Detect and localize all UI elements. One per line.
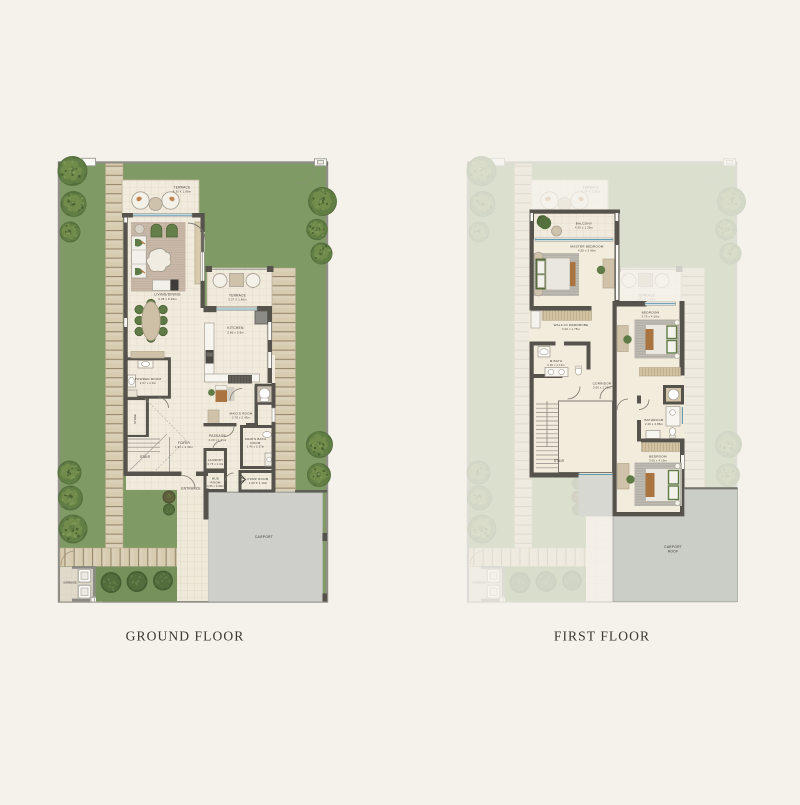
- svg-text:PASSAGE: PASSAGE: [209, 434, 226, 438]
- svg-text:PUMP ROOM: PUMP ROOM: [247, 477, 268, 481]
- svg-text:2.26 x 2.86m: 2.26 x 2.86m: [645, 422, 663, 426]
- svg-text:BATHROOM: BATHROOM: [644, 418, 663, 422]
- svg-text:3.65 x 4.10m: 3.65 x 4.10m: [649, 459, 667, 463]
- svg-text:STAIR: STAIR: [140, 455, 151, 459]
- svg-text:3.00 x 2.12m: 3.00 x 2.12m: [547, 364, 564, 367]
- svg-text:1.60 X 1.10m: 1.60 X 1.10m: [249, 481, 267, 485]
- svg-text:MASTER BEDROOM: MASTER BEDROOM: [570, 245, 603, 249]
- svg-text:FOYER: FOYER: [178, 441, 191, 445]
- svg-text:ENTRANCE: ENTRANCE: [181, 487, 201, 491]
- svg-text:4.35 x 1.25m: 4.35 x 1.25m: [575, 226, 593, 230]
- svg-text:2.70 x 2.43m: 2.70 x 2.43m: [232, 416, 250, 420]
- svg-text:BALCONY: BALCONY: [576, 222, 593, 226]
- svg-text:GROUND FLOOR: GROUND FLOOR: [126, 629, 245, 644]
- svg-text:4.35 x 8.29m: 4.35 x 8.29m: [158, 297, 177, 301]
- svg-text:0.75 x 1.0m: 0.75 x 1.0m: [208, 463, 224, 466]
- svg-text:FIRST FLOOR: FIRST FLOOR: [554, 629, 650, 644]
- svg-text:CORRIDOR: CORRIDOR: [593, 382, 612, 386]
- svg-text:WALK-IN WARDROBE: WALK-IN WARDROBE: [554, 323, 589, 327]
- svg-text:3.75 x 4.10m: 3.75 x 4.10m: [642, 315, 660, 319]
- svg-text:CARPORT: CARPORT: [664, 545, 682, 549]
- svg-text:ROOF: ROOF: [668, 549, 679, 553]
- svg-text:KITCHEN: KITCHEN: [227, 326, 244, 330]
- svg-text:MAID’S ROOM: MAID’S ROOM: [229, 412, 252, 416]
- svg-text:3.66 x 3.9m: 3.66 x 3.9m: [227, 330, 244, 334]
- svg-text:BEDROOM: BEDROOM: [642, 311, 660, 315]
- svg-text:STORE: STORE: [133, 414, 137, 424]
- svg-text:0.65 x 0.98m: 0.65 x 0.98m: [207, 485, 224, 488]
- svg-text:CARPORT: CARPORT: [255, 535, 273, 539]
- svg-text:POWDER ROOM: POWDER ROOM: [135, 377, 162, 381]
- svg-text:LAUNDRY: LAUNDRY: [208, 458, 224, 462]
- svg-text:BEDROOM: BEDROOM: [649, 455, 667, 459]
- svg-text:1.93 x 4.33m: 1.93 x 4.33m: [175, 445, 193, 449]
- svg-text:ROOM: ROOM: [251, 441, 261, 445]
- svg-text:STAIR: STAIR: [554, 459, 565, 463]
- svg-text:2.27 x 2.0m: 2.27 x 2.0m: [140, 381, 156, 385]
- svg-text:4.50 x 3.90m: 4.50 x 3.90m: [578, 249, 596, 253]
- svg-text:LIVING/DINING: LIVING/DINING: [154, 293, 181, 297]
- svg-text:ROOM: ROOM: [211, 480, 221, 484]
- svg-text:1.40 x 2.37m: 1.40 x 2.37m: [247, 446, 264, 449]
- svg-text:M.BATH: M.BATH: [550, 359, 563, 363]
- svg-text:3.40 x 1.75m: 3.40 x 1.75m: [562, 327, 580, 331]
